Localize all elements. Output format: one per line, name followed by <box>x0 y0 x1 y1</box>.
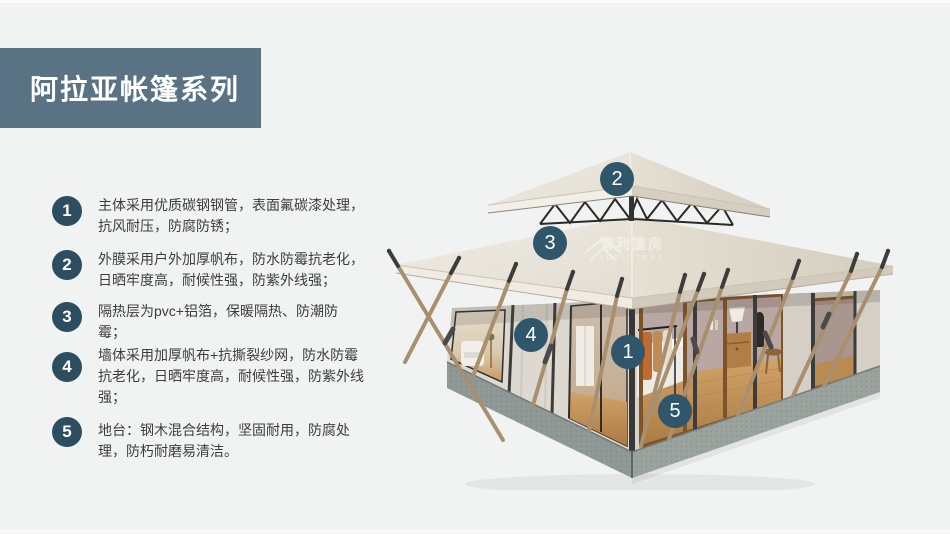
callout-marker-5: 5 <box>658 394 692 428</box>
callout-marker-1: 1 <box>611 335 645 369</box>
slide: 阿拉亚帐篷系列 1 主体采用优质碳钢钢管，表面氟碳漆处理，抗风耐压，防腐防锈； … <box>0 0 950 534</box>
page-title: 阿拉亚帐篷系列 <box>30 68 240 108</box>
feature-text: 隔热层为pvc+铝箔，保暖隔热、防潮防霉； <box>98 301 364 343</box>
callout-marker-4: 4 <box>514 318 548 352</box>
feature-item-1: 1 主体采用优质碳钢钢管，表面氟碳漆处理，抗风耐压，防腐防锈； <box>52 195 368 237</box>
feature-number-badge: 4 <box>52 352 82 382</box>
page-top-edge <box>0 0 950 3</box>
feature-item-2: 2 外膜采用户外加厚帆布，防水防霉抗老化，日晒牢度高，耐候性强，防紫外线强； <box>52 249 368 291</box>
feature-text: 外膜采用户外加厚帆布，防水防霉抗老化，日晒牢度高，耐候性强，防紫外线强； <box>98 249 364 291</box>
feature-item-5: 5 地台：钢木混合结构，坚固耐用，防腐处理，防朽耐磨易清洁。 <box>52 420 368 462</box>
title-banner: 阿拉亚帐篷系列 <box>0 48 261 128</box>
feature-number-badge: 2 <box>52 250 82 280</box>
callout-marker-3: 3 <box>533 226 567 260</box>
feature-number-badge: 5 <box>52 417 82 447</box>
page-bottom-edge <box>0 529 950 534</box>
feature-text: 主体采用优质碳钢钢管，表面氟碳漆处理，抗风耐压，防腐防锈； <box>98 195 364 237</box>
feature-text: 地台：钢木混合结构，坚固耐用，防腐处理，防朽耐磨易清洁。 <box>98 420 364 462</box>
callout-marker-2: 2 <box>600 162 634 196</box>
feature-text: 墙体采用加厚帆布+抗撕裂纱网，防水防霉抗老化，日晒牢度高，耐候性强，防紫外线强； <box>98 345 364 408</box>
tent-illustration: 雪利篷房 XUELI TENT 1 2 3 4 5 <box>385 140 950 490</box>
feature-number-badge: 1 <box>52 196 82 226</box>
feature-item-3: 3 隔热层为pvc+铝箔，保暖隔热、防潮防霉； <box>52 301 368 343</box>
feature-number-badge: 3 <box>52 302 82 332</box>
tent-render <box>385 140 950 490</box>
feature-item-4: 4 墙体采用加厚帆布+抗撕裂纱网，防水防霉抗老化，日晒牢度高，耐候性强，防紫外线… <box>52 345 368 408</box>
